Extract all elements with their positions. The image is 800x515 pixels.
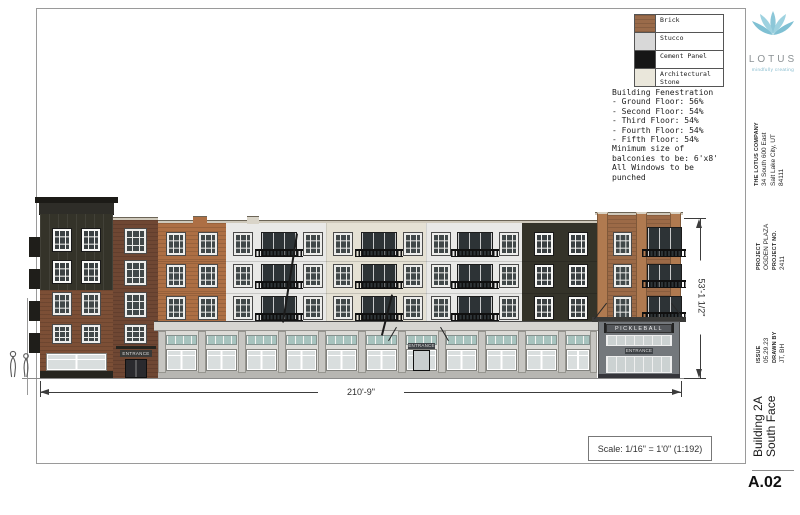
logo-tagline: mindfully creating (744, 67, 800, 74)
issue-date: 05.29.23 (763, 297, 772, 363)
window (403, 264, 423, 288)
transom-window (486, 335, 517, 345)
building-elevation: ENTRANCE (40, 197, 681, 378)
window (166, 296, 186, 320)
transom-window (526, 335, 557, 345)
brick-pilaster (597, 212, 608, 321)
logo-wordmark: LOTUS (746, 54, 800, 66)
balcony-railing (355, 249, 403, 257)
storefront-window (526, 349, 557, 371)
balcony-railing (451, 249, 499, 257)
issue-label: ISSUE (756, 297, 763, 363)
window (499, 296, 519, 320)
note-line: - Ground Floor: 56% (612, 97, 746, 106)
window (303, 264, 323, 288)
width-dimension-label: 210'-9" (318, 386, 404, 399)
legend-row: Architectural Stone (635, 69, 723, 86)
window (52, 260, 72, 284)
window (303, 232, 323, 256)
storefront-window (326, 349, 357, 371)
window (403, 296, 423, 320)
balcony-railing (255, 249, 303, 257)
balcony-railing (642, 280, 686, 288)
window (81, 324, 101, 344)
storefront-window (46, 353, 107, 371)
company-name: THE LOTUS COMPANY (754, 96, 761, 186)
window (613, 264, 632, 288)
drawn-by-label: DRAWN BY (772, 297, 779, 363)
window (499, 264, 519, 288)
window (431, 232, 451, 256)
balcony (29, 333, 40, 353)
entrance-sign: ENTRANCE (408, 343, 435, 349)
window (52, 228, 72, 252)
window (166, 232, 186, 256)
window (81, 228, 101, 252)
window (198, 296, 218, 320)
balcony-railing (255, 313, 303, 321)
window (534, 296, 554, 320)
legend-row: Stucco (635, 33, 723, 51)
balcony (29, 237, 40, 257)
balcony-railing (451, 281, 499, 289)
project-number-label: PROJECT NO. (772, 210, 779, 270)
note-line: - Fourth Floor: 54% (612, 126, 746, 135)
window (233, 296, 253, 320)
company-block: THE LOTUS COMPANY 34 South 600 East Salt… (754, 96, 788, 186)
window (333, 296, 353, 320)
window (233, 264, 253, 288)
company-address: 34 South 600 East (761, 96, 770, 186)
window (568, 296, 588, 320)
floor-line (158, 261, 597, 262)
pickleball-transom (606, 335, 672, 346)
note-line: Minimum size of (612, 144, 746, 153)
tower-cement-panel-wall (40, 214, 113, 290)
window (403, 232, 423, 256)
parapet-pier (193, 216, 207, 224)
pickleball-sign: PICKLEBALL (606, 324, 672, 333)
balcony (29, 301, 40, 321)
window (303, 296, 323, 320)
window (198, 232, 218, 256)
scale-note: Scale: 1/16" = 1'0" (1:192) (588, 436, 712, 461)
note-line: punched (612, 173, 746, 182)
window (534, 264, 554, 288)
window (166, 264, 186, 288)
balcony-railing (451, 313, 499, 321)
transom-window (206, 335, 237, 345)
entrance-door (413, 350, 430, 371)
architectural-stone-swatch (635, 69, 656, 86)
stucco-swatch (635, 33, 656, 50)
storefront-window (246, 349, 277, 371)
storefront-window (286, 349, 317, 371)
storefront-window (566, 349, 590, 371)
pilaster (278, 331, 286, 373)
extension-line (684, 218, 706, 219)
window (613, 232, 632, 256)
storefront-window (366, 349, 397, 371)
project-name: OGDEN PLAZA (763, 210, 772, 270)
note-line: - Third Floor: 54% (612, 116, 746, 125)
pilaster (198, 331, 206, 373)
pilaster (318, 331, 326, 373)
brick-pilaster (636, 212, 647, 321)
pickleball-glazing (606, 356, 672, 373)
project-label: PROJECT (756, 210, 763, 270)
window (81, 260, 101, 284)
pickleball-base (598, 374, 680, 378)
pilaster (158, 331, 166, 373)
project-block: PROJECT OGDEN PLAZA PROJECT NO. 2411 (756, 210, 786, 270)
arrowhead-right-icon (672, 389, 681, 395)
legend-label: Brick (656, 15, 723, 32)
note-line: Building Fenestration (612, 88, 746, 97)
pilaster (558, 331, 566, 373)
window (124, 260, 147, 286)
window (81, 292, 101, 316)
balcony-railing (355, 313, 403, 321)
company-address: 84111 (778, 96, 787, 186)
window (52, 324, 72, 344)
window (124, 292, 147, 318)
arrowhead-up-icon (696, 219, 702, 228)
sheet-number: A.02 (748, 474, 800, 492)
sheet-title-line: South Face (765, 385, 778, 457)
window (124, 324, 147, 344)
bay-joint (326, 223, 327, 321)
drawn-by: JT, BH (779, 297, 788, 363)
extension-line (27, 298, 28, 395)
parapet-pier (247, 216, 259, 224)
window (568, 232, 588, 256)
pilaster (518, 331, 526, 373)
legend-label: Cement Panel (656, 51, 723, 68)
transom-window (326, 335, 357, 345)
entrance-sign: ENTRANCE (120, 350, 152, 357)
ground-line (22, 378, 684, 379)
pilaster (358, 331, 366, 373)
pilaster (590, 331, 597, 373)
storefront-window (486, 349, 517, 371)
pilaster (478, 331, 486, 373)
issue-block: ISSUE 05.29.23 DRAWN BY JT, BH (756, 297, 786, 363)
storefront-cornice (154, 321, 601, 331)
arrowhead-down-icon (696, 369, 702, 378)
material-legend: Brick Stucco Cement Panel Architectural … (634, 14, 724, 87)
window (534, 232, 554, 256)
extension-line (681, 381, 682, 397)
balcony-railing (255, 281, 303, 289)
transom-window (566, 335, 590, 345)
legend-label: Stucco (656, 33, 723, 50)
balcony-railing (642, 249, 686, 257)
window (333, 264, 353, 288)
note-line: - Fifth Floor: 54% (612, 135, 746, 144)
sheet-title: Building 2A South Face (752, 385, 778, 457)
window (431, 296, 451, 320)
sign-post (604, 323, 606, 333)
note-line: - Second Floor: 54% (612, 107, 746, 116)
sign-post (672, 323, 674, 333)
transom-window (446, 335, 477, 345)
window (233, 232, 253, 256)
balcony (29, 269, 40, 289)
transom-window (246, 335, 277, 345)
storefront-window (166, 349, 197, 371)
pilaster (238, 331, 246, 373)
entrance-canopy (116, 346, 156, 349)
window (52, 292, 72, 316)
balcony-railing (355, 281, 403, 289)
transom-window (366, 335, 397, 345)
lotus-logo-icon (750, 8, 796, 52)
window (198, 264, 218, 288)
window (499, 232, 519, 256)
note-line: balconies to be: 6'x8' (612, 154, 746, 163)
sheet-number-divider (752, 470, 794, 471)
transom-window (166, 335, 197, 345)
window (568, 264, 588, 288)
height-dimension-label: 53'-1 1/2" (695, 261, 708, 335)
extension-line (684, 378, 706, 379)
window (333, 232, 353, 256)
floor-line (158, 293, 597, 294)
project-number: 2411 (779, 210, 788, 270)
window (431, 264, 451, 288)
company-address: Salt Lake City, UT (770, 96, 779, 186)
brick-swatch (635, 15, 656, 32)
storefront-window (206, 349, 237, 371)
legend-row: Brick (635, 15, 723, 33)
pilaster (438, 331, 446, 373)
transom-window (286, 335, 317, 345)
legend-label: Architectural Stone (656, 69, 723, 86)
note-line: All Windows to be (612, 163, 746, 172)
bay-joint (426, 223, 427, 321)
storefront-base (158, 371, 597, 378)
window (124, 228, 147, 254)
cement-panel-swatch (635, 51, 656, 68)
fenestration-notes: Building Fenestration - Ground Floor: 56… (612, 88, 746, 182)
arrowhead-left-icon (40, 389, 49, 395)
entrance-sign: ENTRANCE (625, 348, 653, 354)
drawing-sheet: Brick Stucco Cement Panel Architectural … (0, 0, 800, 515)
entrance-door (125, 359, 147, 378)
pilaster (398, 331, 406, 373)
tower-base (40, 371, 113, 378)
legend-row: Cement Panel (635, 51, 723, 69)
storefront-window (446, 349, 477, 371)
